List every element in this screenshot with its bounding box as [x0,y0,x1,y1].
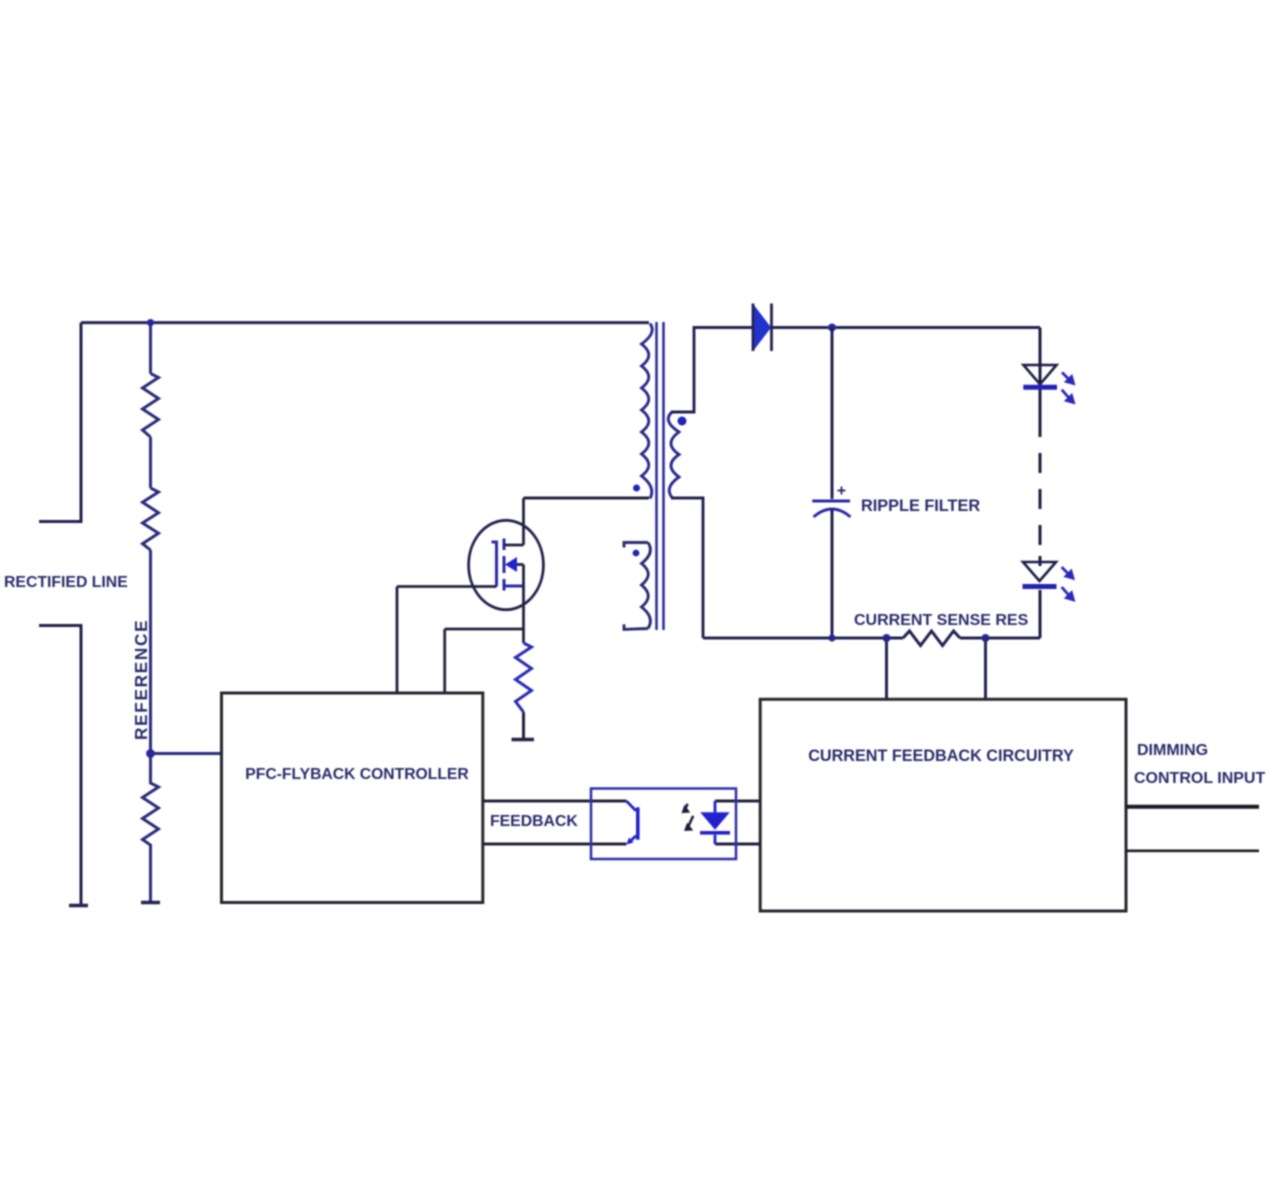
svg-text:CURRENT FEEDBACK CIRCUITRY: CURRENT FEEDBACK CIRCUITRY [808,747,1074,765]
svg-text:PFC-FLYBACK CONTROLLER: PFC-FLYBACK CONTROLLER [245,766,468,783]
svg-text:REFERENCE: REFERENCE [131,619,151,740]
svg-text:CONTROL INPUT: CONTROL INPUT [1134,770,1265,787]
svg-text:FEEDBACK: FEEDBACK [490,813,578,830]
svg-text:DIMMING: DIMMING [1137,742,1208,759]
svg-text:RIPPLE FILTER: RIPPLE FILTER [861,497,980,515]
svg-text:RECTIFIED LINE: RECTIFIED LINE [4,574,128,591]
svg-text:CURRENT SENSE RES: CURRENT SENSE RES [854,612,1029,629]
